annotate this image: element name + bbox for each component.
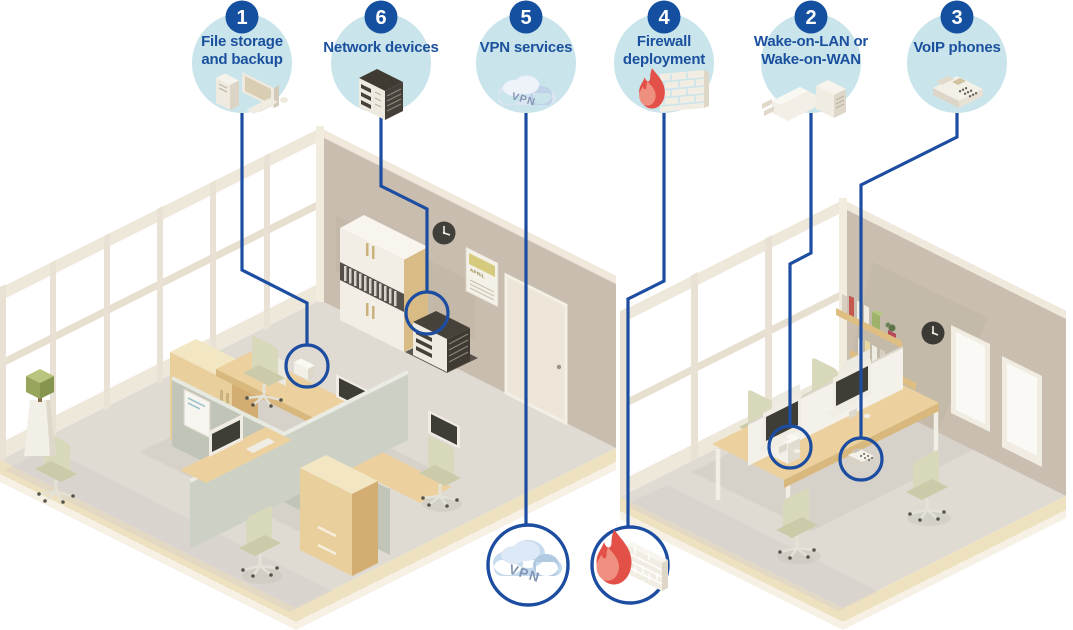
right-corner-post xyxy=(839,198,847,388)
callout-number: 5 xyxy=(520,7,531,29)
callout-label: VoIP phones xyxy=(913,39,1000,56)
callout-6-network-devices: Network devices 6 xyxy=(323,1,438,121)
callout-label: Firewall xyxy=(637,33,691,50)
connector-line-2 xyxy=(790,113,811,426)
callout-bubbles: File storage and backup 1 Network device… xyxy=(192,1,1007,122)
callout-2-wake-on-lan: Wake-on-LAN or Wake-on-WAN 2 xyxy=(754,1,869,122)
vpn-marker-circle: VPN xyxy=(488,525,568,605)
callout-3-voip-phones: VoIP phones 3 xyxy=(907,1,1007,114)
wall-clock-left xyxy=(433,222,456,245)
door-knob xyxy=(557,365,561,369)
callout-number: 3 xyxy=(951,7,962,29)
brick-wall-side xyxy=(704,70,709,108)
left-corner-post xyxy=(316,126,324,302)
book-spines xyxy=(842,294,847,314)
callout-label: Network devices xyxy=(323,39,438,56)
wardrobe-side xyxy=(352,481,378,576)
callout-label: Wake-on-LAN or xyxy=(754,33,869,50)
callout-number: 4 xyxy=(658,7,670,29)
callout-label: File storage xyxy=(201,33,283,50)
book-spines xyxy=(849,296,854,318)
callout-number: 6 xyxy=(375,7,386,29)
right-room xyxy=(620,198,1066,630)
desk-mouse xyxy=(864,414,871,418)
potted-topiary-plant xyxy=(24,369,56,456)
callout-label: VPN services xyxy=(480,39,573,56)
chair-shadow xyxy=(242,568,282,584)
callout-label: Wake-on-WAN xyxy=(761,51,861,68)
firewall-marker-circle xyxy=(592,527,668,603)
book-spines xyxy=(864,305,869,325)
isometric-scene: APRIL xyxy=(0,0,1073,630)
callout-1-file-storage: File storage and backup 1 xyxy=(192,1,292,115)
callout-number: 2 xyxy=(805,7,816,29)
brick-wall-side xyxy=(662,560,668,591)
callout-4-firewall: Firewall deployment 4 xyxy=(614,1,714,114)
callout-5-vpn-services: VPN services VPN 5 xyxy=(476,1,576,114)
wall-clock-right xyxy=(922,322,945,345)
callout-number: 1 xyxy=(236,7,247,29)
infographic-canvas: APRIL xyxy=(0,0,1073,630)
callout-label: deployment xyxy=(623,51,705,68)
callout-label: and backup xyxy=(201,51,282,68)
desk-mouse xyxy=(794,449,801,453)
